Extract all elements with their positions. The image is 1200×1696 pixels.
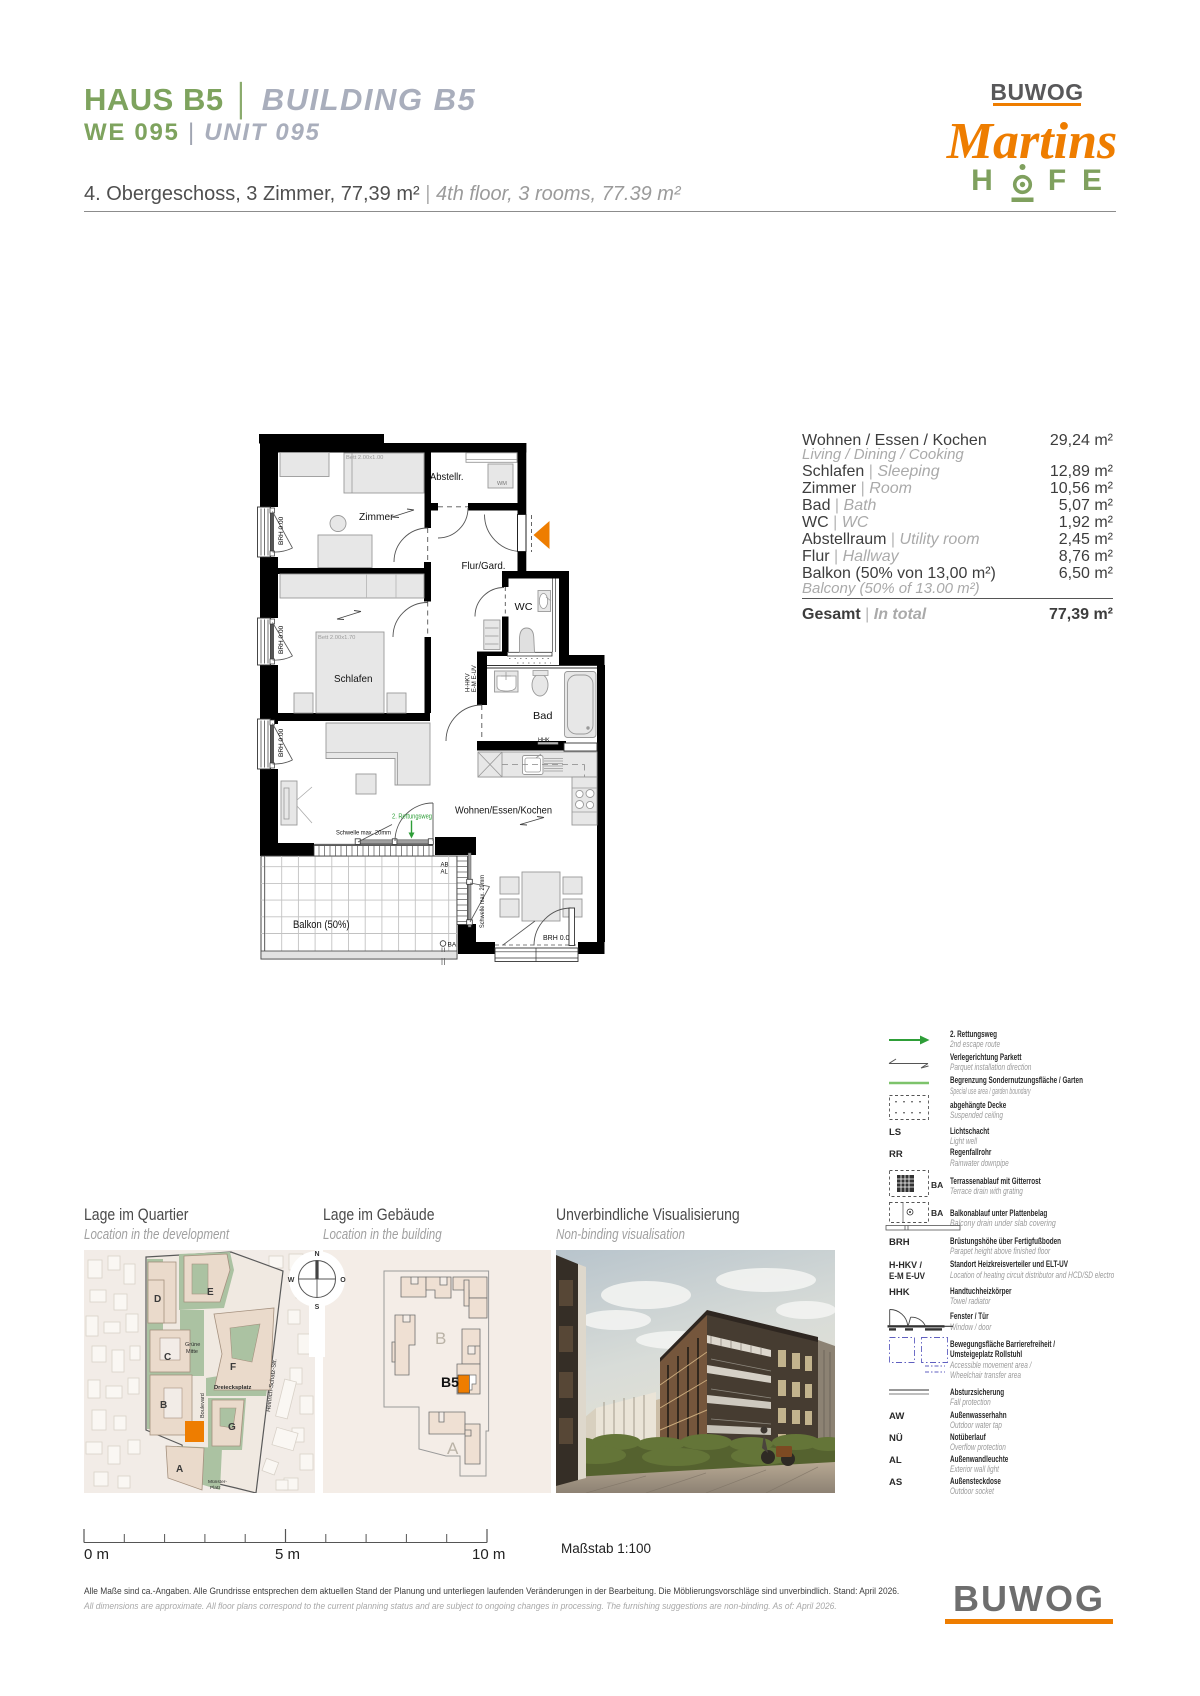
svg-text:B: B [160,1400,167,1411]
svg-text:Wohnen/Essen/Kochen: Wohnen/Essen/Kochen [455,805,552,817]
svg-text:Münster-: Münster- [208,1479,227,1485]
svg-text:B: B [435,1329,446,1348]
svg-text:B5: B5 [441,1374,459,1390]
svg-text:W: W [288,1277,295,1284]
svg-text:Grüne: Grüne [185,1342,200,1348]
svg-text:F: F [1048,164,1066,197]
svg-text:Zimmer: Zimmer [359,511,394,523]
svg-text:AL: AL [441,870,449,876]
svg-text:Flur/Gard.: Flur/Gard. [462,560,506,572]
svg-text:H-HKV: H-HKV [466,673,472,692]
svg-text:Boulevard: Boulevard [200,1393,206,1418]
svg-text:NÜ: NÜ [889,1433,903,1444]
svg-text:Dreiecksplatz: Dreiecksplatz [214,1385,251,1391]
svg-text:G: G [228,1422,236,1433]
svg-text:Bett 2.00x1.00: Bett 2.00x1.00 [346,455,383,461]
svg-text:E-M E-UV: E-M E-UV [889,1271,926,1282]
svg-text:BA: BA [931,1180,943,1190]
svg-text:2. Rettungsweg: 2. Rettungsweg [392,814,432,821]
svg-text:BA: BA [448,942,457,949]
svg-text:N: N [314,1251,319,1258]
svg-text:H: H [971,164,993,197]
svg-text:A: A [447,1439,459,1458]
svg-text:RR: RR [889,1149,903,1160]
svg-text:D: D [154,1294,161,1305]
svg-text:F: F [230,1362,236,1373]
svg-text:HHK: HHK [889,1287,910,1298]
svg-text:C: C [164,1352,171,1363]
svg-text:AS: AS [889,1477,902,1488]
svg-text:WC: WC [515,601,533,613]
svg-text:Bad: Bad [533,710,553,722]
svg-text:AW: AW [889,1411,904,1422]
svg-text:Balkon (50%): Balkon (50%) [293,919,350,931]
svg-text:BUWOG: BUWOG [953,1578,1105,1619]
svg-text:Bett 2.00x1.70: Bett 2.00x1.70 [318,635,355,641]
svg-text:Schwelle max. 20mm: Schwelle max. 20mm [336,830,391,837]
svg-text:BUWOG: BUWOG [990,79,1083,105]
svg-text:BA: BA [931,1208,943,1218]
svg-text:LS: LS [889,1127,901,1138]
svg-text:BRH 0.00: BRH 0.00 [278,516,285,545]
svg-text:O: O [340,1277,346,1284]
svg-text:S: S [315,1304,320,1311]
svg-text:BRH: BRH [889,1237,910,1248]
svg-text:Schlafen: Schlafen [334,673,373,685]
svg-text:E: E [207,1287,214,1298]
svg-text:Martins: Martins [946,113,1118,170]
svg-text:AB: AB [441,863,449,869]
svg-text:H-HKV /: H-HKV / [889,1260,922,1271]
svg-text:Schwelle max. 20mm: Schwelle max. 20mm [479,875,486,928]
svg-text:WM: WM [497,481,507,487]
svg-text:Mitte: Mitte [186,1349,198,1355]
svg-text:BRH 0.00: BRH 0.00 [278,728,285,757]
svg-text:A: A [176,1464,183,1475]
svg-text:Abstellr.: Abstellr. [430,471,464,483]
svg-text:AL: AL [889,1455,902,1466]
svg-text:E-M E-UV: E-M E-UV [472,665,478,692]
svg-text:Platz: Platz [210,1485,221,1491]
svg-text:BRH 0.00: BRH 0.00 [278,625,285,654]
svg-text:E: E [1082,164,1102,197]
